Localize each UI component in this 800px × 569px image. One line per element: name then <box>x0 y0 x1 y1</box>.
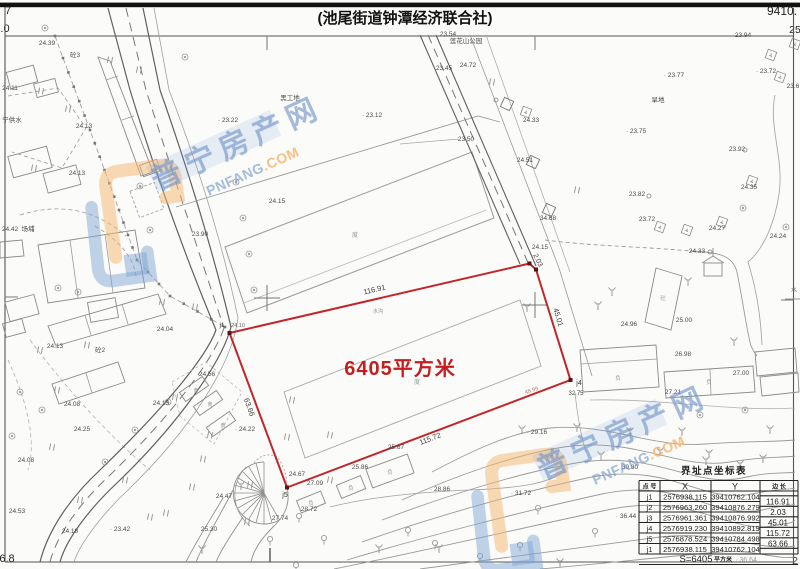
svg-text:24.15: 24.15 <box>532 244 549 251</box>
svg-text:24.13: 24.13 <box>69 170 86 177</box>
svg-text:2576938.115: 2576938.115 <box>663 545 707 554</box>
svg-text:63.66: 63.66 <box>768 539 789 548</box>
svg-text:23.54: 23.54 <box>440 31 457 38</box>
svg-text:25: 25 <box>789 24 800 36</box>
svg-text:负: 负 <box>387 468 393 476</box>
svg-text:点 号: 点 号 <box>643 483 657 491</box>
svg-text:23.82: 23.82 <box>629 191 646 198</box>
svg-text:23.6: 23.6 <box>787 83 800 90</box>
svg-text:24.33: 24.33 <box>523 117 540 124</box>
svg-text:· 36.44: · 36.44 <box>616 513 637 520</box>
svg-text:旱地: 旱地 <box>652 95 666 104</box>
svg-text:2576919.230: 2576919.230 <box>663 524 707 533</box>
svg-text:24.15: 24.15 <box>269 198 286 205</box>
svg-text:j1: j1 <box>218 322 224 329</box>
svg-text:9410.: 9410. <box>767 4 797 18</box>
svg-text:39410892.819: 39410892.819 <box>711 524 760 533</box>
svg-text:24.15: 24.15 <box>153 400 170 407</box>
svg-text:23.94: 23.94 <box>735 32 752 39</box>
svg-text:边 长: 边 长 <box>771 483 787 491</box>
svg-text:24.08: 24.08 <box>18 457 35 464</box>
svg-text:24.27: 24.27 <box>709 225 726 232</box>
svg-text:24.18: 24.18 <box>62 528 79 535</box>
svg-text:24.72: 24.72 <box>460 62 477 69</box>
svg-text:24.51: 24.51 <box>517 157 534 164</box>
svg-text:S=6405: S=6405 <box>679 554 712 565</box>
svg-text:27.74: 27.74 <box>272 515 289 522</box>
svg-text:j5: j5 <box>646 534 653 543</box>
svg-text:· 29.16: · 29.16 <box>527 429 548 436</box>
svg-text:27.00: 27.00 <box>733 370 750 377</box>
svg-text:39410876.992: 39410876.992 <box>711 513 760 522</box>
svg-text:负: 负 <box>706 378 712 386</box>
svg-text:24.47: 24.47 <box>216 493 233 500</box>
svg-text:6405平方米: 6405平方米 <box>344 356 456 380</box>
svg-text:j1: j1 <box>646 492 653 501</box>
svg-text:砼: 砼 <box>660 294 666 302</box>
svg-text:24.56: 24.56 <box>199 371 216 378</box>
svg-text:116.91: 116.91 <box>766 497 790 506</box>
svg-text:· 24.22: · 24.22 <box>235 426 256 433</box>
svg-text:23.45: 23.45 <box>436 65 453 72</box>
svg-text:6.8: 6.8 <box>0 553 15 565</box>
svg-text:24.11: 24.11 <box>2 85 18 92</box>
svg-text:27.09: 27.09 <box>307 480 324 487</box>
svg-text:黄: 黄 <box>207 401 212 408</box>
svg-text:39410762.104: 39410762.104 <box>711 545 760 554</box>
svg-text:28.72: 28.72 <box>301 506 318 513</box>
svg-text:45.01: 45.01 <box>768 518 789 527</box>
svg-text:宁供水: 宁供水 <box>2 115 22 124</box>
svg-text:j5: j5 <box>281 492 288 499</box>
svg-text:界址点坐标表: 界址点坐标表 <box>681 465 747 477</box>
svg-text:场埔: 场埔 <box>22 224 36 233</box>
svg-text:黄: 黄 <box>193 387 198 394</box>
svg-text:· 23.22: · 23.22 <box>218 117 239 124</box>
svg-text:· 23.75: · 23.75 <box>626 128 647 135</box>
svg-text:24.13: 24.13 <box>47 343 64 350</box>
svg-text:39410784.498: 39410784.498 <box>711 534 760 543</box>
svg-text:24.04: 24.04 <box>157 326 174 333</box>
svg-text:· 23.12: · 23.12 <box>362 112 383 119</box>
svg-text:2576961.361: 2576961.361 <box>663 513 707 522</box>
svg-text:j2: j2 <box>646 503 653 512</box>
svg-text:24.96: 24.96 <box>621 321 638 328</box>
svg-text:26.98: 26.98 <box>675 351 692 358</box>
svg-text:24.08: 24.08 <box>64 401 81 408</box>
svg-text:115.72: 115.72 <box>766 529 790 538</box>
svg-text:23.90: 23.90 <box>192 231 209 238</box>
svg-text:砼2: 砼2 <box>95 345 106 354</box>
svg-text:25.86: 25.86 <box>352 464 369 471</box>
svg-text:负: 负 <box>348 484 354 492</box>
svg-text:· 23.77: · 23.77 <box>664 72 685 79</box>
svg-text:25.00: 25.00 <box>676 317 693 324</box>
svg-text:Y: Y <box>732 482 738 492</box>
svg-text:39410762.104: 39410762.104 <box>711 492 760 501</box>
svg-text:24.35: 24.35 <box>741 184 758 191</box>
svg-text:平方米: 平方米 <box>714 556 732 564</box>
svg-text:度: 度 <box>352 231 358 239</box>
svg-text:34.68: 34.68 <box>540 215 557 222</box>
svg-text:23.72: 23.72 <box>639 216 656 223</box>
svg-text:7: 7 <box>5 5 11 17</box>
svg-text:24.67: 24.67 <box>289 471 306 478</box>
svg-text:· 28.86: · 28.86 <box>430 486 451 493</box>
svg-text:2576938.115: 2576938.115 <box>663 492 707 501</box>
svg-text:24.25: 24.25 <box>74 426 91 433</box>
svg-text:· 31.72: · 31.72 <box>511 490 532 497</box>
svg-text:25.67: 25.67 <box>388 444 405 451</box>
svg-text:24.33: 24.33 <box>689 248 706 255</box>
svg-text:· 23.42: · 23.42 <box>110 526 131 533</box>
svg-text:24.42: 24.42 <box>2 226 19 233</box>
svg-text:2576878.524: 2576878.524 <box>663 534 707 543</box>
svg-text:水: 水 <box>791 286 797 294</box>
svg-text:X: X <box>682 482 688 492</box>
svg-text:负: 负 <box>615 374 621 382</box>
svg-text:24.13: 24.13 <box>76 123 93 130</box>
svg-text:23.50: 23.50 <box>458 136 475 143</box>
svg-text:j4: j4 <box>575 380 582 387</box>
svg-text:2.03: 2.03 <box>770 508 786 517</box>
svg-text:· 23.72: · 23.72 <box>756 68 777 75</box>
svg-text:24.53: 24.53 <box>9 508 26 515</box>
svg-text:j1: j1 <box>646 545 653 554</box>
svg-text:j3: j3 <box>646 513 653 522</box>
svg-text:24.10: 24.10 <box>231 323 245 329</box>
svg-text:2: 2 <box>792 555 798 567</box>
svg-text:莲花山公园: 莲花山公园 <box>450 36 483 45</box>
svg-text:j4: j4 <box>646 524 653 533</box>
svg-text:39410876.279: 39410876.279 <box>711 503 760 512</box>
svg-text:25.30: 25.30 <box>201 526 218 533</box>
svg-text:24.24: 24.24 <box>770 233 787 240</box>
svg-text:(池尾街道钟潭经济联合社): (池尾街道钟潭经济联合社) <box>318 9 493 27</box>
svg-text:· 36.64: · 36.64 <box>735 557 757 564</box>
svg-text:32.75: 32.75 <box>568 391 584 397</box>
svg-text:砼3: 砼3 <box>70 50 81 59</box>
svg-text:水沟: 水沟 <box>372 307 384 315</box>
svg-text:2576963.260: 2576963.260 <box>663 503 707 512</box>
svg-text:24.39: 24.39 <box>39 40 56 47</box>
